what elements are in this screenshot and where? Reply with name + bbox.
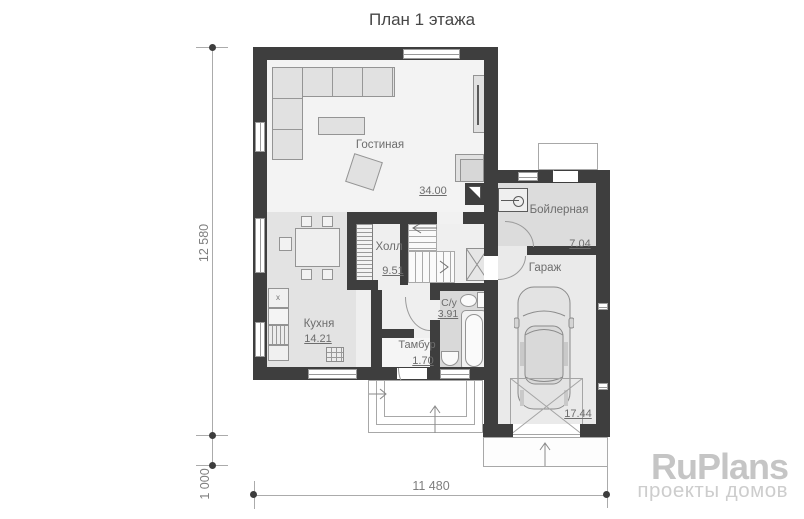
wall xyxy=(347,212,356,290)
vent-opening xyxy=(598,383,608,390)
door-opening xyxy=(553,171,578,182)
chimney-flue-icon xyxy=(468,186,481,199)
room-area-vestibule: 1.70 xyxy=(412,355,433,367)
wall xyxy=(347,212,437,224)
room-area-kitchen: 14.21 xyxy=(304,333,332,345)
boiler-dial-icon xyxy=(513,196,524,207)
room-area-boiler: 7.04 xyxy=(569,238,590,250)
dimension-dot xyxy=(209,432,216,439)
toilet-icon xyxy=(460,294,477,307)
bathtub-basin xyxy=(465,314,483,367)
page-title: План 1 этажа xyxy=(369,10,475,30)
wall xyxy=(371,290,382,367)
fireplace-inner xyxy=(460,159,484,182)
dining-armchair xyxy=(279,237,292,251)
tv-icon xyxy=(477,85,479,125)
wall xyxy=(382,329,414,338)
dining-table xyxy=(295,228,340,267)
dining-chair xyxy=(301,269,312,280)
kitchen-cabinet xyxy=(268,345,289,361)
wall xyxy=(430,283,498,291)
sofa-chaise xyxy=(272,67,303,160)
dining-chair xyxy=(322,216,333,227)
room-area-hall: 9.51 xyxy=(382,265,403,277)
living-hall-opening-floor xyxy=(437,212,463,224)
boiler-porch xyxy=(538,143,598,170)
dimension-line-vertical xyxy=(212,47,213,465)
watermark: RuPlans проекты домов xyxy=(637,449,788,502)
porch-up-arrow-icon xyxy=(429,403,441,433)
dimension-total-height: 12 580 xyxy=(197,224,211,262)
window xyxy=(255,322,265,357)
room-area-living: 34.00 xyxy=(419,185,447,197)
window xyxy=(308,369,357,379)
room-area-bathroom: 3.91 xyxy=(438,308,458,320)
garage-door-icon xyxy=(510,378,583,435)
wall xyxy=(430,291,440,300)
vent-opening xyxy=(598,303,608,310)
dining-chair xyxy=(322,269,333,280)
window xyxy=(255,218,265,273)
dishwasher xyxy=(326,347,344,362)
floor-plan-page: План 1 этажа x xyxy=(0,0,804,519)
kitchen-sink-cabinet xyxy=(268,308,289,325)
wall xyxy=(253,47,498,60)
dimension-dot xyxy=(209,44,216,51)
fridge-mark: x xyxy=(276,293,280,302)
wall xyxy=(580,424,610,437)
dining-chair xyxy=(301,216,312,227)
boiler-pipe xyxy=(501,200,519,201)
dimension-dot xyxy=(250,491,257,498)
wardrobe xyxy=(356,216,373,282)
door-opening xyxy=(484,256,498,280)
wall xyxy=(463,212,484,224)
stove xyxy=(268,325,289,345)
room-area-garage: 17.44 xyxy=(564,408,592,420)
wall xyxy=(347,280,378,290)
porch-side-arrow-icon xyxy=(369,388,389,400)
room-label-living: Гостиная xyxy=(356,139,404,151)
porch-step xyxy=(384,380,467,417)
window xyxy=(255,122,265,152)
stairs-turn-arrow-icon xyxy=(438,260,450,274)
window xyxy=(403,49,460,59)
window xyxy=(518,172,538,181)
room-label-kitchen: Кухня xyxy=(304,318,335,330)
dimension-porch-depth: 1 000 xyxy=(198,468,212,499)
wall xyxy=(484,183,498,424)
dimension-total-width: 11 480 xyxy=(412,479,449,493)
wall xyxy=(483,424,513,437)
apron-arrow-icon xyxy=(539,440,551,466)
dimension-line-horizontal xyxy=(254,495,607,496)
room-label-vestibule: Тамбур xyxy=(398,339,435,351)
room-label-boiler: Бойлерная xyxy=(530,204,589,216)
watermark-tagline: проекты домов xyxy=(637,481,788,502)
wall xyxy=(484,47,498,183)
boiler-unit xyxy=(498,188,528,212)
room-label-garage: Гараж xyxy=(529,262,561,274)
room-label-hall: Холл xyxy=(375,241,402,253)
fridge: x xyxy=(268,288,289,308)
dimension-dot xyxy=(603,491,610,498)
coffee-table xyxy=(318,117,365,135)
window xyxy=(440,369,470,379)
